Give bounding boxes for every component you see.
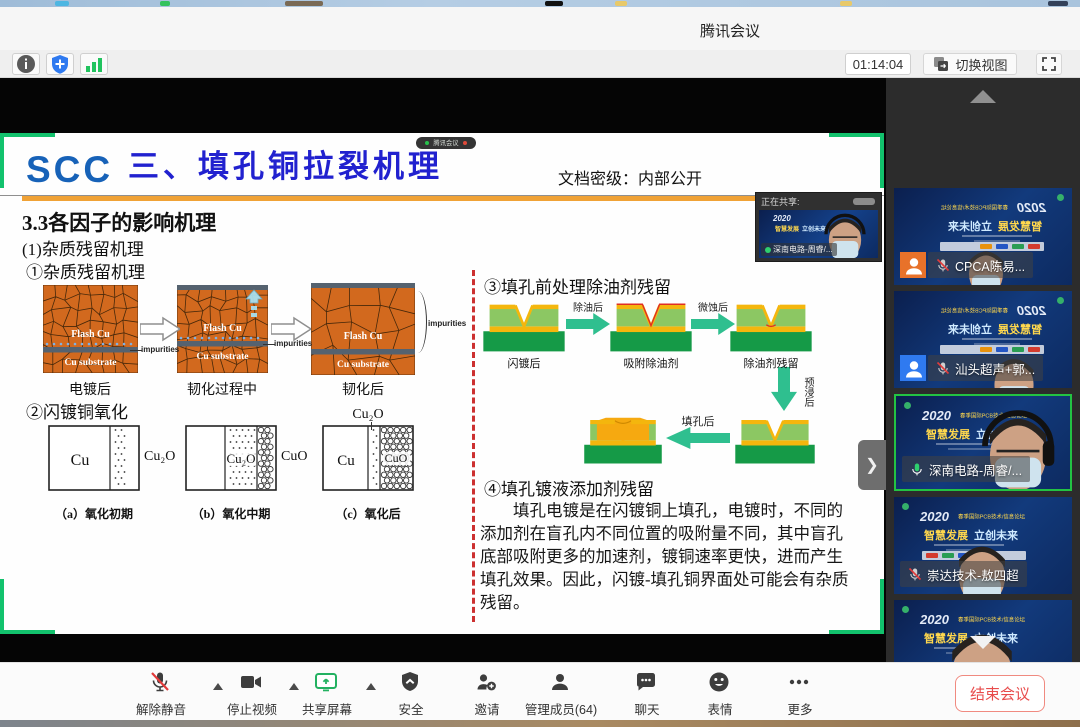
share-badge-label: 腾讯会议: [433, 139, 458, 148]
svg-text:Cu substrate: Cu substrate: [197, 352, 249, 362]
emoji-button[interactable]: 表情: [678, 670, 762, 718]
chat-label: 聊天: [634, 699, 659, 718]
desktop-window-fragment: [615, 1, 627, 6]
participant-name: 汕头超声+郭...: [955, 359, 1035, 378]
switch-view-icon: [932, 55, 950, 73]
mic-muted-icon: [908, 567, 922, 581]
security-label: 安全: [398, 699, 423, 718]
cuo-label: CuO: [281, 449, 321, 465]
oxidation-caption: （c）氧化后: [308, 505, 428, 522]
desktop-window-fragment: [55, 1, 69, 6]
chat-button[interactable]: 聊天: [605, 670, 689, 718]
fullscreen-button[interactable]: [1036, 53, 1062, 75]
svg-text:Flash Cu: Flash Cu: [344, 331, 383, 342]
presenter-name: 深南电路-周睿/...: [773, 244, 833, 255]
impurities-leader-line: [130, 350, 142, 351]
recording-dot-icon: [463, 141, 467, 145]
stop-video-label: 停止视频: [227, 699, 277, 718]
svg-text:Cu substrate: Cu substrate: [337, 360, 389, 370]
process-arrow-icon: [140, 316, 180, 342]
sharing-indicator-icon: [425, 141, 429, 145]
participant-name-badge: 崇达技术-敖四超: [900, 561, 1027, 587]
oxidation-caption: （a）氧化初期: [34, 505, 154, 522]
participant-name-badge: 深南电路-周睿/...: [902, 456, 1030, 482]
arrow-label-microetch: 微蚀后: [688, 299, 738, 314]
preview-controls-pill[interactable]: [853, 198, 875, 205]
screen-share-icon: [314, 670, 340, 696]
via-caption: 吸附除油剂: [596, 355, 706, 371]
slide-title: 三、填孔铜拉裂机理: [128, 141, 443, 186]
impurities-label: impurities: [274, 339, 312, 348]
mic-active-icon: [910, 462, 924, 476]
sharing-toolbar-badge[interactable]: 腾讯会议: [416, 137, 476, 149]
via-fill-diagram-residue: [728, 295, 814, 353]
copper-grain-diagram: Flash CuCu substrate: [43, 285, 138, 373]
more-button[interactable]: 更多: [758, 670, 842, 718]
via-fill-diagram-open: [481, 295, 567, 353]
fullscreen-icon: [1040, 55, 1058, 73]
presenter-name-badge: 深南电路-周睿/...: [761, 243, 837, 256]
members-button[interactable]: 管理成员(64): [519, 670, 603, 718]
tencent-meeting-window: 腾讯会议 01:14:04 切换视图 SCC 三、填孔铜拉裂机理 文档密级：内部…: [0, 0, 1080, 727]
impurities-bracket: [417, 291, 427, 353]
via-caption: 除油剂残留: [716, 355, 826, 371]
scroll-down-button[interactable]: [970, 636, 996, 649]
network-signal-icon: [83, 53, 105, 75]
participant-name: 崇达技术-敖四超: [927, 565, 1019, 584]
via-fill-diagram-coated: [608, 295, 694, 353]
security-button[interactable]: 安全: [369, 670, 453, 718]
participant-name-badge: 汕头超声+郭...: [928, 355, 1043, 381]
copper-grain-diagram: Flash CuCu substrate: [311, 283, 415, 375]
arrow-label-predip: 预浸后: [800, 371, 815, 413]
arrow-after-fill: [666, 427, 730, 449]
arrow-after-microetch: [691, 313, 735, 335]
unmute-button[interactable]: 解除静音: [119, 670, 203, 718]
participant-thumbnail[interactable]: 2020春季国际PCB技术/信息论坛智慧发展立创未来深南电路-周睿/...: [894, 394, 1072, 491]
shield-protect-button[interactable]: [46, 53, 74, 75]
mic-active-icon: [765, 247, 771, 253]
network-signal-button[interactable]: [80, 53, 108, 75]
person-add-icon: [474, 670, 500, 696]
cu2o-leader-line: [371, 422, 372, 430]
arrow-after-predip: [771, 367, 797, 411]
oxidation-diagram-c: CuCuO: [322, 425, 414, 491]
svg-text:Flash Cu: Flash Cu: [71, 329, 110, 340]
meeting-toolbar: 解除静音停止视频共享屏幕安全邀请管理成员(64)聊天表情更多 结束会议: [0, 662, 1080, 720]
sharing-preview-panel[interactable]: 正在共享: 2020 智慧发展立创未来 深南电路-周睿/...: [755, 192, 882, 262]
participants-sidebar: 2020春季国际PCB技术/信息论坛智慧发展立创未来CPCA陈易...2020春…: [886, 78, 1080, 662]
share-screen-label: 共享屏幕: [302, 699, 352, 718]
arrow-label-degrease: 除油后: [563, 299, 613, 314]
desktop-window-fragment: [840, 1, 852, 6]
desktop-window-fragment: [160, 1, 170, 6]
svg-text:CuO: CuO: [385, 451, 408, 465]
oxidation-diagram-b: Cu₂O: [185, 425, 277, 491]
oxidation-diagram-a: Cu: [48, 425, 140, 491]
mic-muted-icon: [936, 361, 950, 375]
desktop-top-edge: [0, 0, 1080, 7]
cu2o-label: Cu₂O: [144, 449, 184, 465]
invite-button[interactable]: 邀请: [445, 670, 529, 718]
column-divider-dashed: [472, 270, 475, 622]
grain-caption: 韧化后: [313, 379, 413, 399]
via-fill-diagram-filled: [582, 411, 664, 465]
participant-name: 深南电路-周睿/...: [929, 460, 1022, 479]
presenter-video-preview: 2020 智慧发展立创未来 深南电路-周睿/...: [759, 210, 878, 258]
info-button[interactable]: [12, 53, 40, 75]
info-icon: [15, 53, 37, 75]
participant-name-badge: CPCA陈易...: [928, 252, 1033, 278]
participant-thumbnail[interactable]: 2020春季国际PCB技术/信息论坛智慧发展立创未来崇达技术-敖四超: [894, 497, 1072, 594]
document-classification: 文档密级：内部公开: [558, 165, 702, 189]
window-titlebar: 腾讯会议: [0, 7, 1080, 50]
smiley-icon: [707, 670, 733, 696]
copper-grain-diagram: Flash CuCu substrate: [177, 285, 268, 373]
arrow-after-degrease: [566, 313, 610, 335]
end-meeting-button[interactable]: 结束会议: [955, 675, 1045, 712]
members-label: 管理成员(64): [525, 699, 597, 718]
invite-label: 邀请: [474, 699, 499, 718]
sharing-preview-header: 正在共享:: [756, 193, 881, 210]
desktop-window-fragment: [1048, 1, 1068, 6]
share-screen-button[interactable]: 共享屏幕: [285, 670, 369, 718]
camera-icon: [239, 670, 265, 696]
impurities-label: impurities: [428, 319, 466, 328]
subsection-4: ④填孔镀液添加剂残留: [484, 475, 654, 500]
meeting-statusbar: 01:14:04 切换视图: [0, 50, 1080, 78]
app-title: 腾讯会议: [700, 20, 760, 41]
more-label: 更多: [787, 699, 812, 718]
participant-thumbnail[interactable]: 2020春季国际PCB技术/信息论坛智慧发展立创未来汕头超声+郭...: [894, 291, 1072, 388]
chevron-right-icon: ❯: [865, 455, 878, 475]
svg-text:Cu: Cu: [337, 453, 355, 469]
grain-caption: 电镀后: [40, 379, 140, 399]
meeting-timer: 01:14:04: [845, 53, 911, 75]
header-accent-rule: [22, 196, 838, 201]
subsection-1: (1)杂质残留机理: [22, 235, 144, 260]
svg-text:Cu: Cu: [71, 452, 90, 469]
more-icon: [787, 670, 813, 696]
participant-name: CPCA陈易...: [955, 256, 1025, 275]
via-caption: 闪镀后: [469, 355, 579, 371]
impurities-leader-line: [263, 344, 275, 345]
via-fill-diagram-open: [733, 411, 817, 465]
oxidation-caption: （b）氧化中期: [171, 505, 291, 522]
cu2o-label-top: Cu₂O: [344, 407, 392, 423]
stop-video-button[interactable]: 停止视频: [210, 670, 294, 718]
body-paragraph: 填孔电镀是在闪镀铜上填孔，电镀时，不同的添加剂在盲孔内不同位置的吸附量不同，其中…: [480, 499, 852, 614]
section-heading: 3.3各因子的影响机理: [22, 207, 216, 237]
desktop-window-fragment: [545, 1, 563, 6]
shield-protect-icon: [49, 53, 71, 75]
arrow-label-fill: 填孔后: [668, 413, 728, 429]
subsection-2: ②闪镀铜氧化: [26, 398, 128, 423]
participant-avatar: [900, 355, 926, 381]
impurities-label: impurities: [141, 345, 179, 354]
switch-view-label: 切换视图: [955, 55, 1007, 74]
sharing-preview-label: 正在共享:: [761, 195, 800, 208]
emoji-label: 表情: [707, 699, 732, 718]
participant-avatar: [900, 252, 926, 278]
mic-muted-icon: [936, 258, 950, 272]
share-border-corner-tl: [0, 133, 55, 188]
share-border-corner-br: [829, 579, 884, 634]
collapse-sidebar-handle[interactable]: ❯: [858, 440, 886, 490]
presentation-slide: SCC 三、填孔铜拉裂机理 文档密级：内部公开 3.3各因子的影响机理 (1)杂…: [0, 133, 884, 634]
switch-view-button[interactable]: 切换视图: [923, 53, 1017, 75]
subsection-1a: ①杂质残留机理: [26, 258, 145, 283]
share-border-corner-bl: [0, 579, 55, 634]
shield-icon: [398, 670, 424, 696]
grain-caption: 韧化过程中: [172, 379, 272, 399]
desktop-bottom-edge: [0, 720, 1080, 727]
participant-thumbnail[interactable]: 2020春季国际PCB技术/信息论坛智慧发展立创未来CPCA陈易...: [894, 188, 1072, 285]
chat-icon: [634, 670, 660, 696]
mic-muted-icon: [148, 670, 174, 696]
unmute-label: 解除静音: [136, 699, 186, 718]
people-icon: [548, 670, 574, 696]
desktop-window-fragment: [285, 1, 323, 6]
svg-text:Flash Cu: Flash Cu: [203, 323, 242, 334]
share-border-corner-tr: [829, 133, 884, 188]
svg-text:Cu₂O: Cu₂O: [226, 451, 255, 466]
svg-text:Cu substrate: Cu substrate: [65, 358, 117, 368]
shared-screen-stage: SCC 三、填孔铜拉裂机理 文档密级：内部公开 3.3各因子的影响机理 (1)杂…: [0, 78, 886, 662]
scroll-up-button[interactable]: [970, 90, 996, 103]
